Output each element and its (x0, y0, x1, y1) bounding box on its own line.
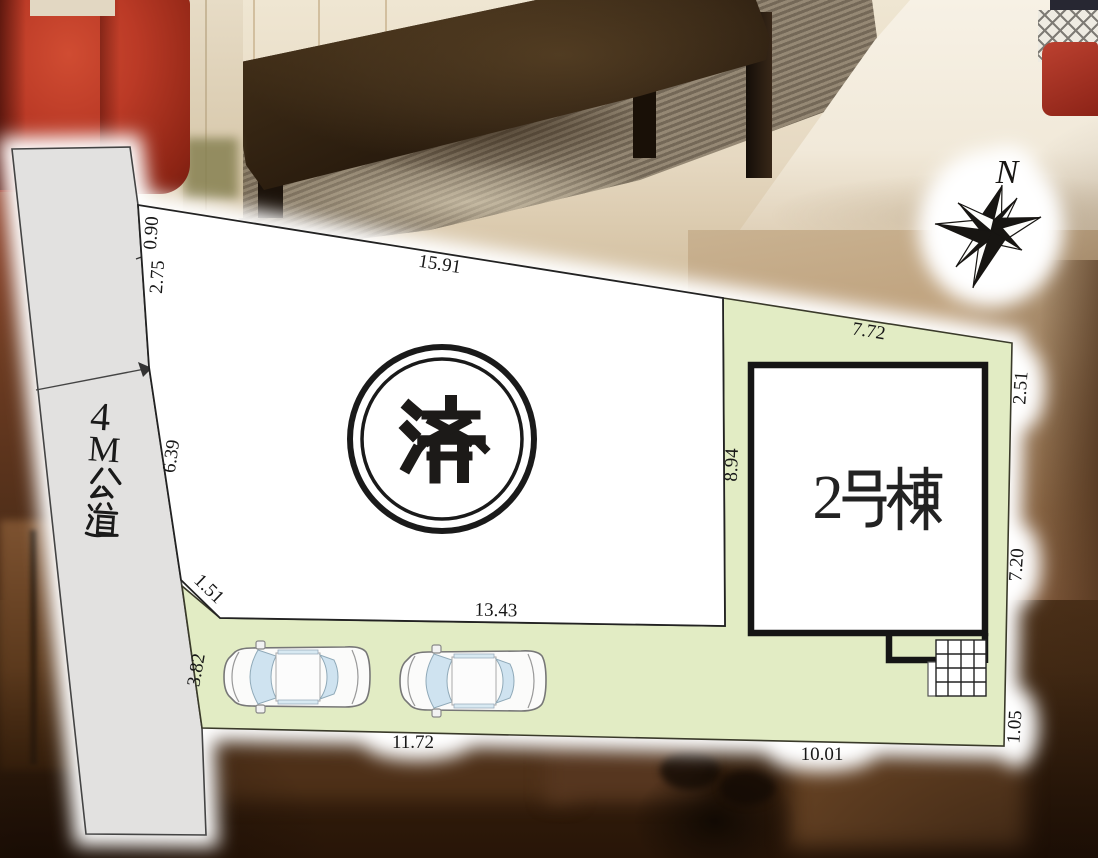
svg-text:1.05: 1.05 (1003, 710, 1026, 745)
svg-text:13.43: 13.43 (474, 600, 517, 622)
svg-text:11.72: 11.72 (392, 732, 434, 753)
svg-text:2.51: 2.51 (1009, 371, 1032, 406)
svg-text:N: N (995, 154, 1021, 191)
svg-text:M: M (87, 428, 122, 470)
svg-text:0.90: 0.90 (140, 216, 163, 251)
svg-text:7.20: 7.20 (1005, 548, 1028, 583)
svg-text:10.01: 10.01 (801, 744, 844, 765)
svg-text:2.75: 2.75 (146, 260, 169, 295)
svg-text:8.94: 8.94 (721, 447, 743, 481)
svg-text:2: 2 (813, 464, 844, 532)
